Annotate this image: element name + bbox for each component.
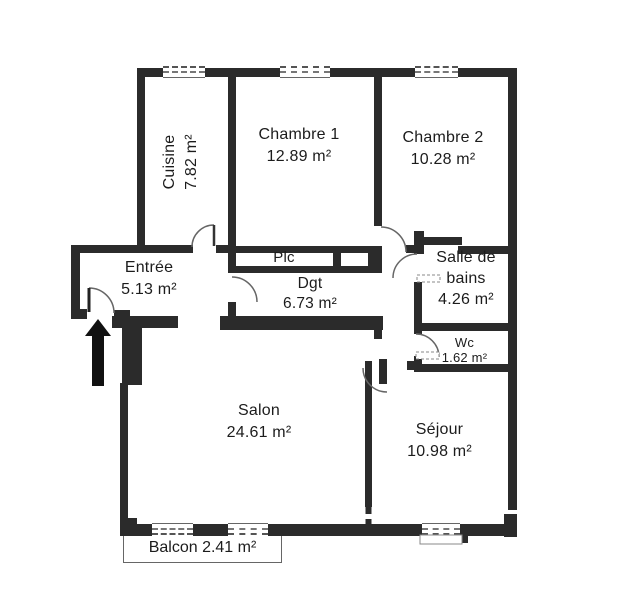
room-label-chambre1: Chambre 1 12.89 m² (224, 124, 374, 168)
room-area: 5.13 m² (85, 279, 213, 301)
room-area: 7.82 m² (181, 107, 203, 217)
room-area: 4.26 m² (429, 289, 503, 310)
room-name: Salle de bains (429, 247, 503, 289)
room-name: Salon (185, 400, 333, 422)
room-area: 12.89 m² (224, 146, 374, 168)
sejour-door-arc (363, 368, 387, 392)
room-name: Chambre 1 (224, 124, 374, 146)
sejour-window-ledge (420, 535, 462, 544)
room-name: Balcon (149, 539, 198, 556)
room-area: 6.73 m² (252, 294, 368, 314)
room-area: 24.61 m² (185, 422, 333, 444)
room-name: Chambre 2 (380, 127, 506, 149)
room-area: 1.62 m² (427, 350, 502, 365)
chambre1-door-arc (381, 227, 406, 252)
entrance-arrow-shaft (92, 335, 104, 386)
room-label-chambre2: Chambre 2 10.28 m² (380, 127, 506, 171)
room-area: 10.28 m² (380, 149, 506, 171)
room-label-wc: Wc 1.62 m² (427, 335, 502, 365)
room-label-sejour: Séjour 10.98 m² (368, 419, 511, 463)
room-name: Wc (427, 335, 502, 350)
room-area: 2.41 m² (202, 539, 256, 556)
room-label-dgt: Dgt 6.73 m² (252, 274, 368, 314)
floor-plan: Cuisine 7.82 m² Chambre 1 12.89 m² Chamb… (0, 0, 640, 610)
room-label-plc: Plc (246, 250, 322, 266)
cuisine-door-arc (192, 225, 214, 247)
entrance-arrow-icon (85, 319, 111, 386)
room-name: Entrée (85, 257, 213, 279)
room-label-cuisine: Cuisine 7.82 m² (159, 107, 203, 217)
sdb-door-arc (393, 254, 417, 278)
room-label-salon: Salon 24.61 m² (185, 400, 333, 444)
room-label-sdb: Salle de bains 4.26 m² (429, 247, 503, 310)
room-name: Plc (246, 250, 322, 266)
room-name: Dgt (252, 274, 368, 294)
room-name: Séjour (368, 419, 511, 441)
room-label-entree: Entrée 5.13 m² (85, 257, 213, 301)
room-name: Cuisine (159, 107, 181, 217)
entrance-arrow-head (85, 319, 111, 336)
room-area: 10.98 m² (368, 441, 511, 463)
room-label-balcon: Balcon 2.41 m² (124, 534, 281, 562)
